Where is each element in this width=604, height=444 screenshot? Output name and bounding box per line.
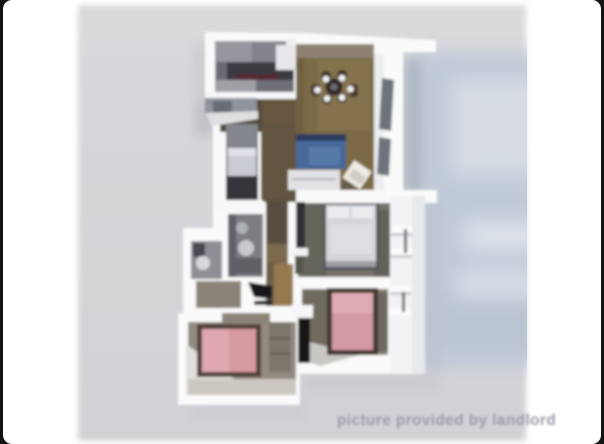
svg-text:picture provided by landlord: picture provided by landlord bbox=[337, 412, 556, 429]
